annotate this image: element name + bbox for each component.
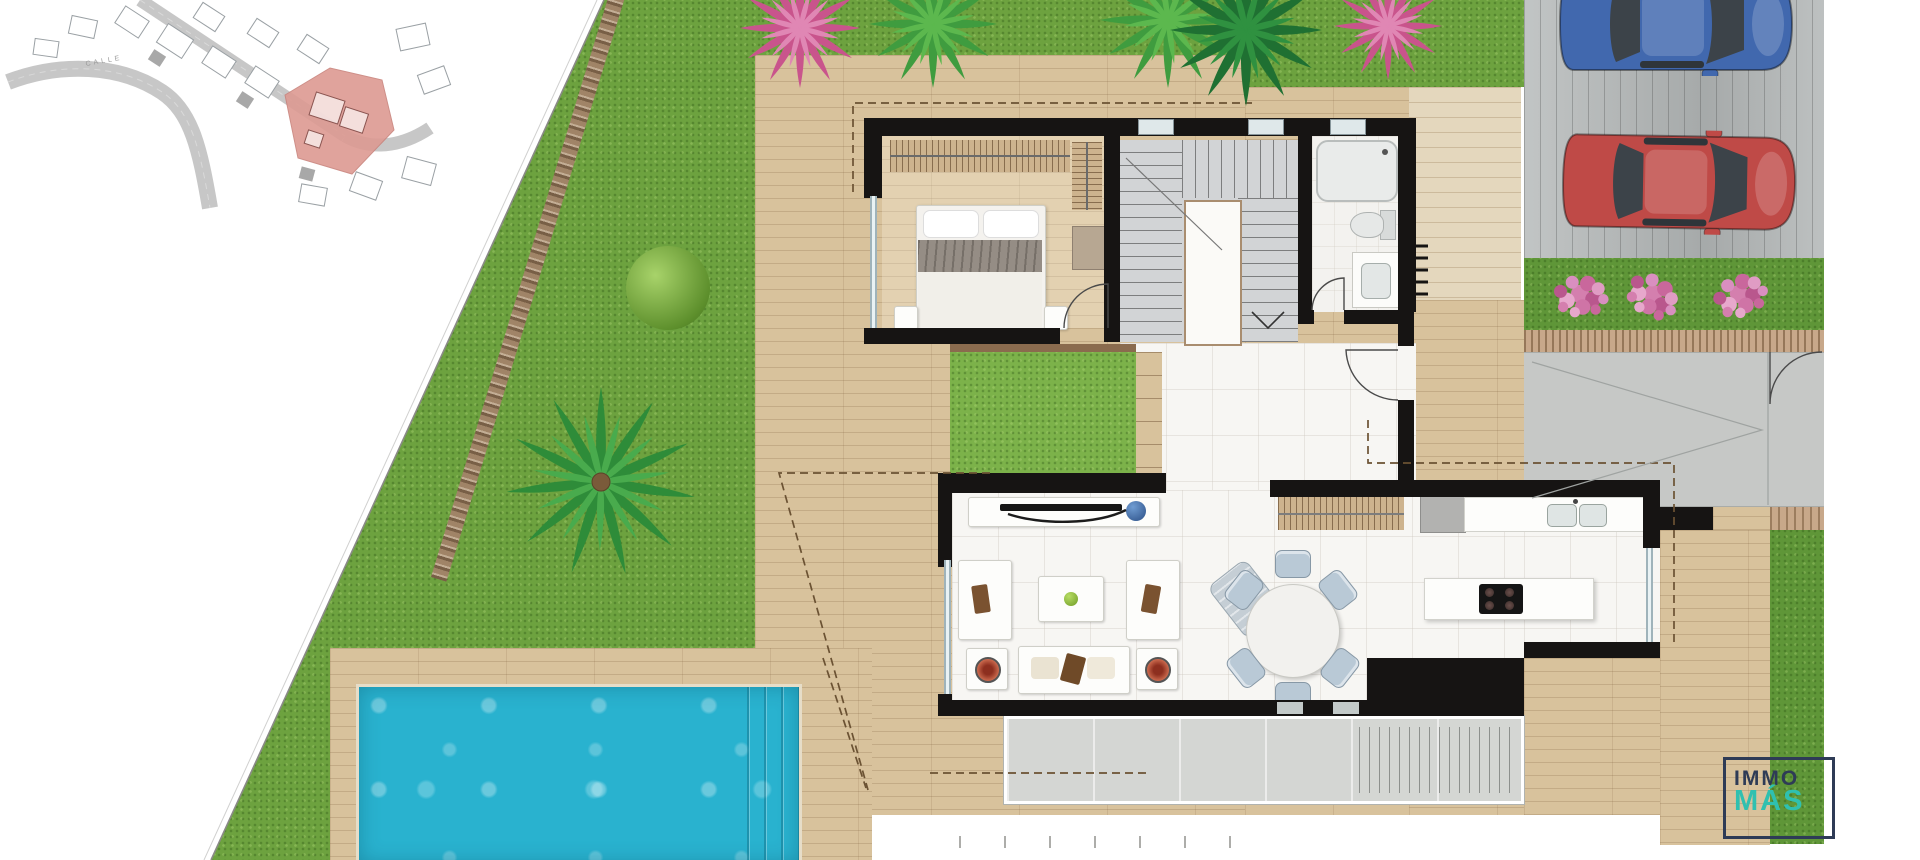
- wall-hall-east-a: [1398, 312, 1414, 346]
- sofa: [1018, 646, 1130, 694]
- red-bowl-left: [975, 657, 1001, 683]
- logo-line-2: MÁS: [1734, 787, 1826, 816]
- red-bowl-right: [1145, 657, 1171, 683]
- stair-void: [1184, 200, 1242, 346]
- stone-patch: [1770, 503, 1824, 530]
- burner-1: [1485, 588, 1494, 597]
- south-porch: [1004, 716, 1524, 804]
- kitchen-counter: [1464, 497, 1646, 532]
- hall-floor: [1120, 343, 1416, 490]
- living-glass-wall: [944, 560, 951, 702]
- window-south-2: [1333, 702, 1359, 714]
- sink-left: [1547, 504, 1577, 527]
- sink-right: [1579, 504, 1607, 527]
- round-shrub: [626, 246, 710, 330]
- inner-courtyard-garden: [950, 352, 1136, 473]
- wall-kitchen-southeast: [1524, 642, 1660, 658]
- window-south-1: [1277, 702, 1303, 714]
- burner-4: [1505, 601, 1514, 610]
- side-table-right: [1136, 648, 1178, 690]
- window-north-2: [1248, 119, 1284, 135]
- stair-treads-top: [1182, 140, 1298, 198]
- side-table-left: [966, 648, 1008, 690]
- bed-duvet: [918, 272, 1042, 327]
- stone-wall-band: [1524, 330, 1824, 352]
- armchair-left-throw: [971, 584, 991, 614]
- flower-bed-lawn: [1524, 258, 1824, 330]
- wall-south-main: [938, 700, 1400, 716]
- sofa-cushion-left: [1031, 657, 1059, 679]
- window-north-3: [1330, 119, 1366, 135]
- wardrobe-east: [1072, 142, 1102, 210]
- site-location-map: CALLE: [0, 0, 470, 210]
- kitchen-glass-wall: [1646, 548, 1653, 644]
- sofa-throw: [1060, 653, 1087, 685]
- dining-chair-n: [1275, 550, 1311, 578]
- nightstand-left: [894, 306, 918, 330]
- east-threshold-deck: [1713, 503, 1770, 530]
- burner-3: [1485, 601, 1494, 610]
- wall-bath-south-a: [1298, 310, 1314, 324]
- swimming-pool: [356, 684, 802, 860]
- vanity-sink: [1361, 263, 1391, 299]
- pillow-left: [923, 210, 979, 238]
- wall-east-upper: [1398, 118, 1416, 312]
- coffee-table: [1038, 576, 1104, 622]
- faucet: [1573, 499, 1578, 504]
- pillow-right: [983, 210, 1039, 238]
- kitchen-sideboard: [1278, 497, 1404, 530]
- wall-bath-west: [1298, 136, 1312, 310]
- entry-path: [1409, 87, 1521, 308]
- wall-bath-south-b: [1344, 310, 1404, 324]
- nightstand-right: [1044, 306, 1068, 330]
- immo-mas-logo: IMMO MÁS: [1723, 757, 1835, 839]
- wardrobe-rail-2: [1086, 142, 1088, 210]
- floor-plan-scene: CALLE: [0, 0, 1920, 860]
- armchair-left: [958, 560, 1012, 640]
- stair-treads-right: [1238, 198, 1298, 342]
- pool-steps: [747, 687, 799, 860]
- wall-west-mid: [938, 473, 952, 567]
- wall-stair-west: [1104, 136, 1120, 342]
- wardrobe-rail: [890, 155, 1070, 157]
- wall-tv: [938, 473, 1166, 493]
- kitchen-island: [1424, 578, 1594, 620]
- blue-vase: [1126, 501, 1146, 521]
- wardrobe-north: [890, 140, 1070, 172]
- bedroom-glass-wall: [870, 196, 877, 330]
- bathroom-vanity: [1352, 252, 1400, 308]
- courtyard-edge: [950, 344, 1136, 352]
- porch-steps: [1359, 727, 1515, 793]
- apple-decor: [1064, 592, 1078, 606]
- hob: [1479, 584, 1523, 614]
- wall-west-upper: [864, 118, 882, 198]
- window-north-1: [1138, 119, 1174, 135]
- wall-bedroom-south: [864, 328, 1060, 344]
- bathtub-drain: [1382, 149, 1388, 155]
- burner-2: [1505, 588, 1514, 597]
- armchair-right: [1126, 560, 1180, 640]
- sideboard-shelf: [1278, 513, 1404, 515]
- wall-kitchen-north: [1270, 480, 1660, 497]
- deck-southeast: [1524, 658, 1660, 815]
- stair-treads-left: [1120, 152, 1182, 342]
- toilet-bowl: [1350, 212, 1384, 238]
- armchair-right-throw: [1141, 584, 1162, 614]
- bed-blanket: [918, 240, 1042, 272]
- sofa-cushion-right: [1087, 657, 1115, 679]
- tv: [1000, 504, 1122, 511]
- wall-east-column: [1643, 480, 1660, 548]
- bathtub: [1316, 140, 1398, 202]
- highlighted-plot: [285, 68, 394, 174]
- wall-hall-east-b: [1398, 400, 1414, 490]
- driveway: [1524, 0, 1824, 258]
- courtyard-steps: [1136, 352, 1162, 473]
- double-bed: [916, 205, 1046, 330]
- survey-tick-marks: [960, 836, 1230, 848]
- east-threshold-wall: [1660, 503, 1713, 530]
